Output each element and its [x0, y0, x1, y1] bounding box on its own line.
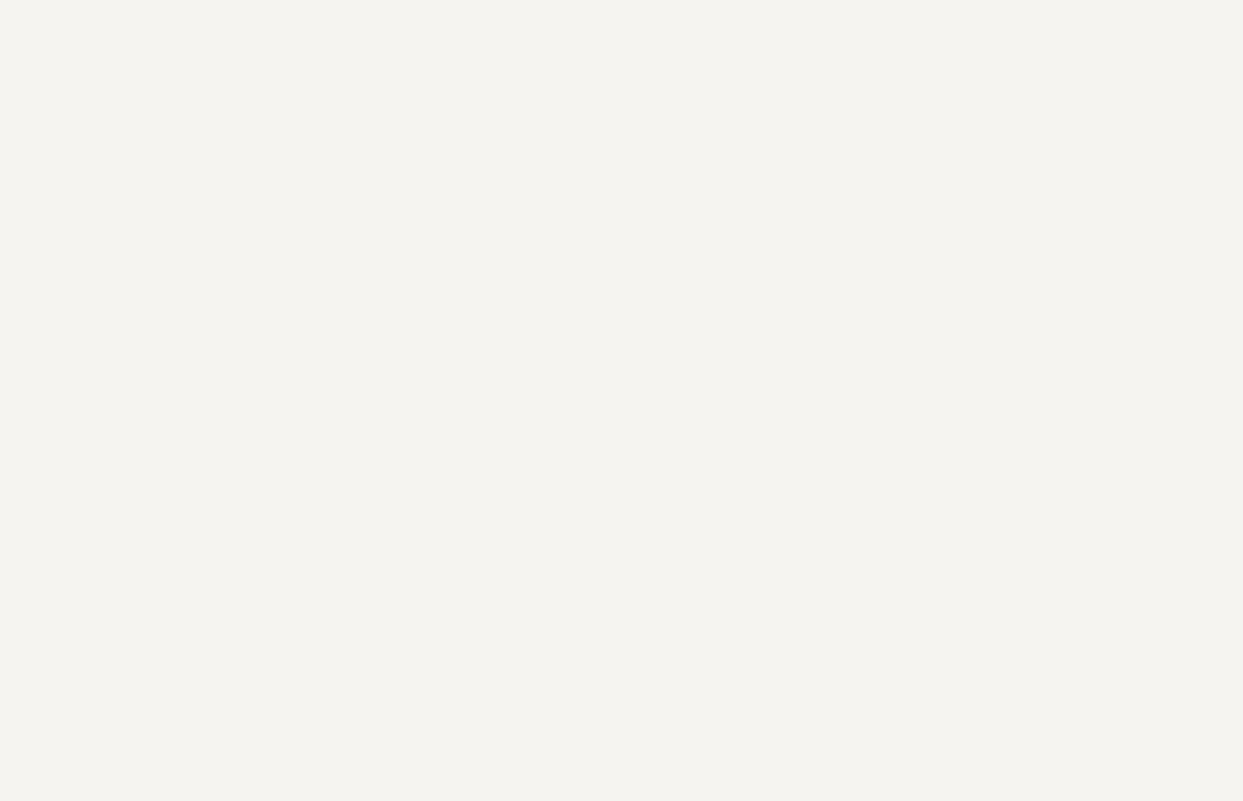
schematic-page — [0, 0, 1243, 801]
stabilizer-schematic-canvas — [0, 0, 1243, 801]
